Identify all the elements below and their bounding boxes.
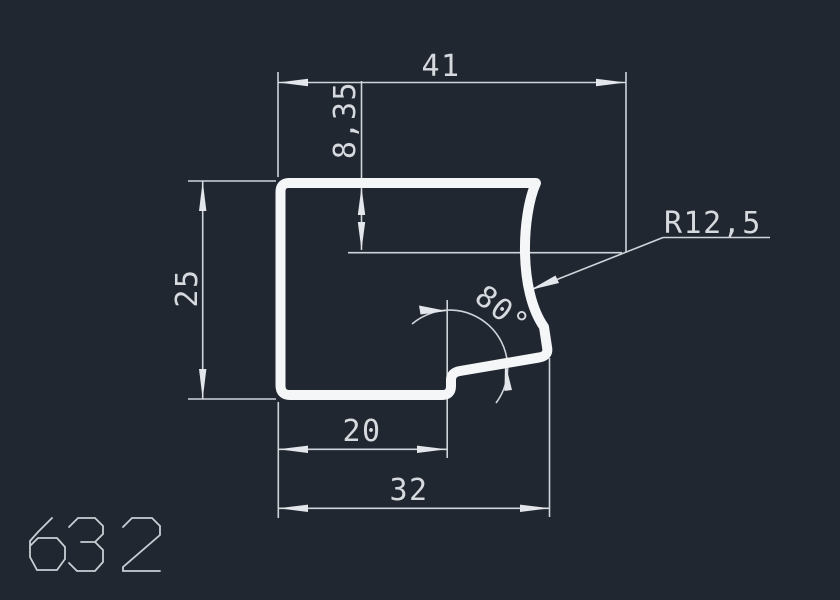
dimension-text-r12-5: R12,5 xyxy=(664,206,762,241)
arrowhead-right-icon xyxy=(596,79,626,86)
dimension-text-25: 25 xyxy=(170,268,205,307)
cad-viewport[interactable]: 41 8,35 25 20 xyxy=(0,0,840,600)
dimension-text-8-35: 8,35 xyxy=(328,81,363,159)
dimension-fillet-radius: R12,5 xyxy=(530,206,770,290)
drawing-number xyxy=(30,518,160,571)
arrowhead-right-icon xyxy=(417,446,447,453)
dimension-text-20: 20 xyxy=(342,414,381,449)
arrowhead-up-icon xyxy=(358,187,365,215)
digit-2-glyph xyxy=(123,518,160,571)
arrowhead-left-icon xyxy=(278,505,308,512)
drawing-canvas: 41 8,35 25 20 xyxy=(0,0,840,600)
digit-3-glyph xyxy=(69,518,103,571)
dimension-text-32: 32 xyxy=(389,473,428,508)
part-profile-outline xyxy=(281,183,548,395)
arrowhead-down-icon xyxy=(358,222,365,250)
arrowhead-right-icon xyxy=(520,505,550,512)
dimension-height: 25 xyxy=(170,181,276,399)
digit-6-glyph xyxy=(30,518,65,570)
arrowhead-left-icon xyxy=(278,446,308,453)
arrowhead-left-icon xyxy=(278,79,308,86)
arrowhead-down-icon xyxy=(199,369,206,399)
dimension-recess-depth: 8,35 xyxy=(328,81,622,253)
dimension-text-41: 41 xyxy=(421,49,460,84)
arrowhead-up-icon xyxy=(199,181,206,211)
arrowhead-icon xyxy=(530,276,559,291)
dimension-angle: 80° xyxy=(412,279,536,403)
